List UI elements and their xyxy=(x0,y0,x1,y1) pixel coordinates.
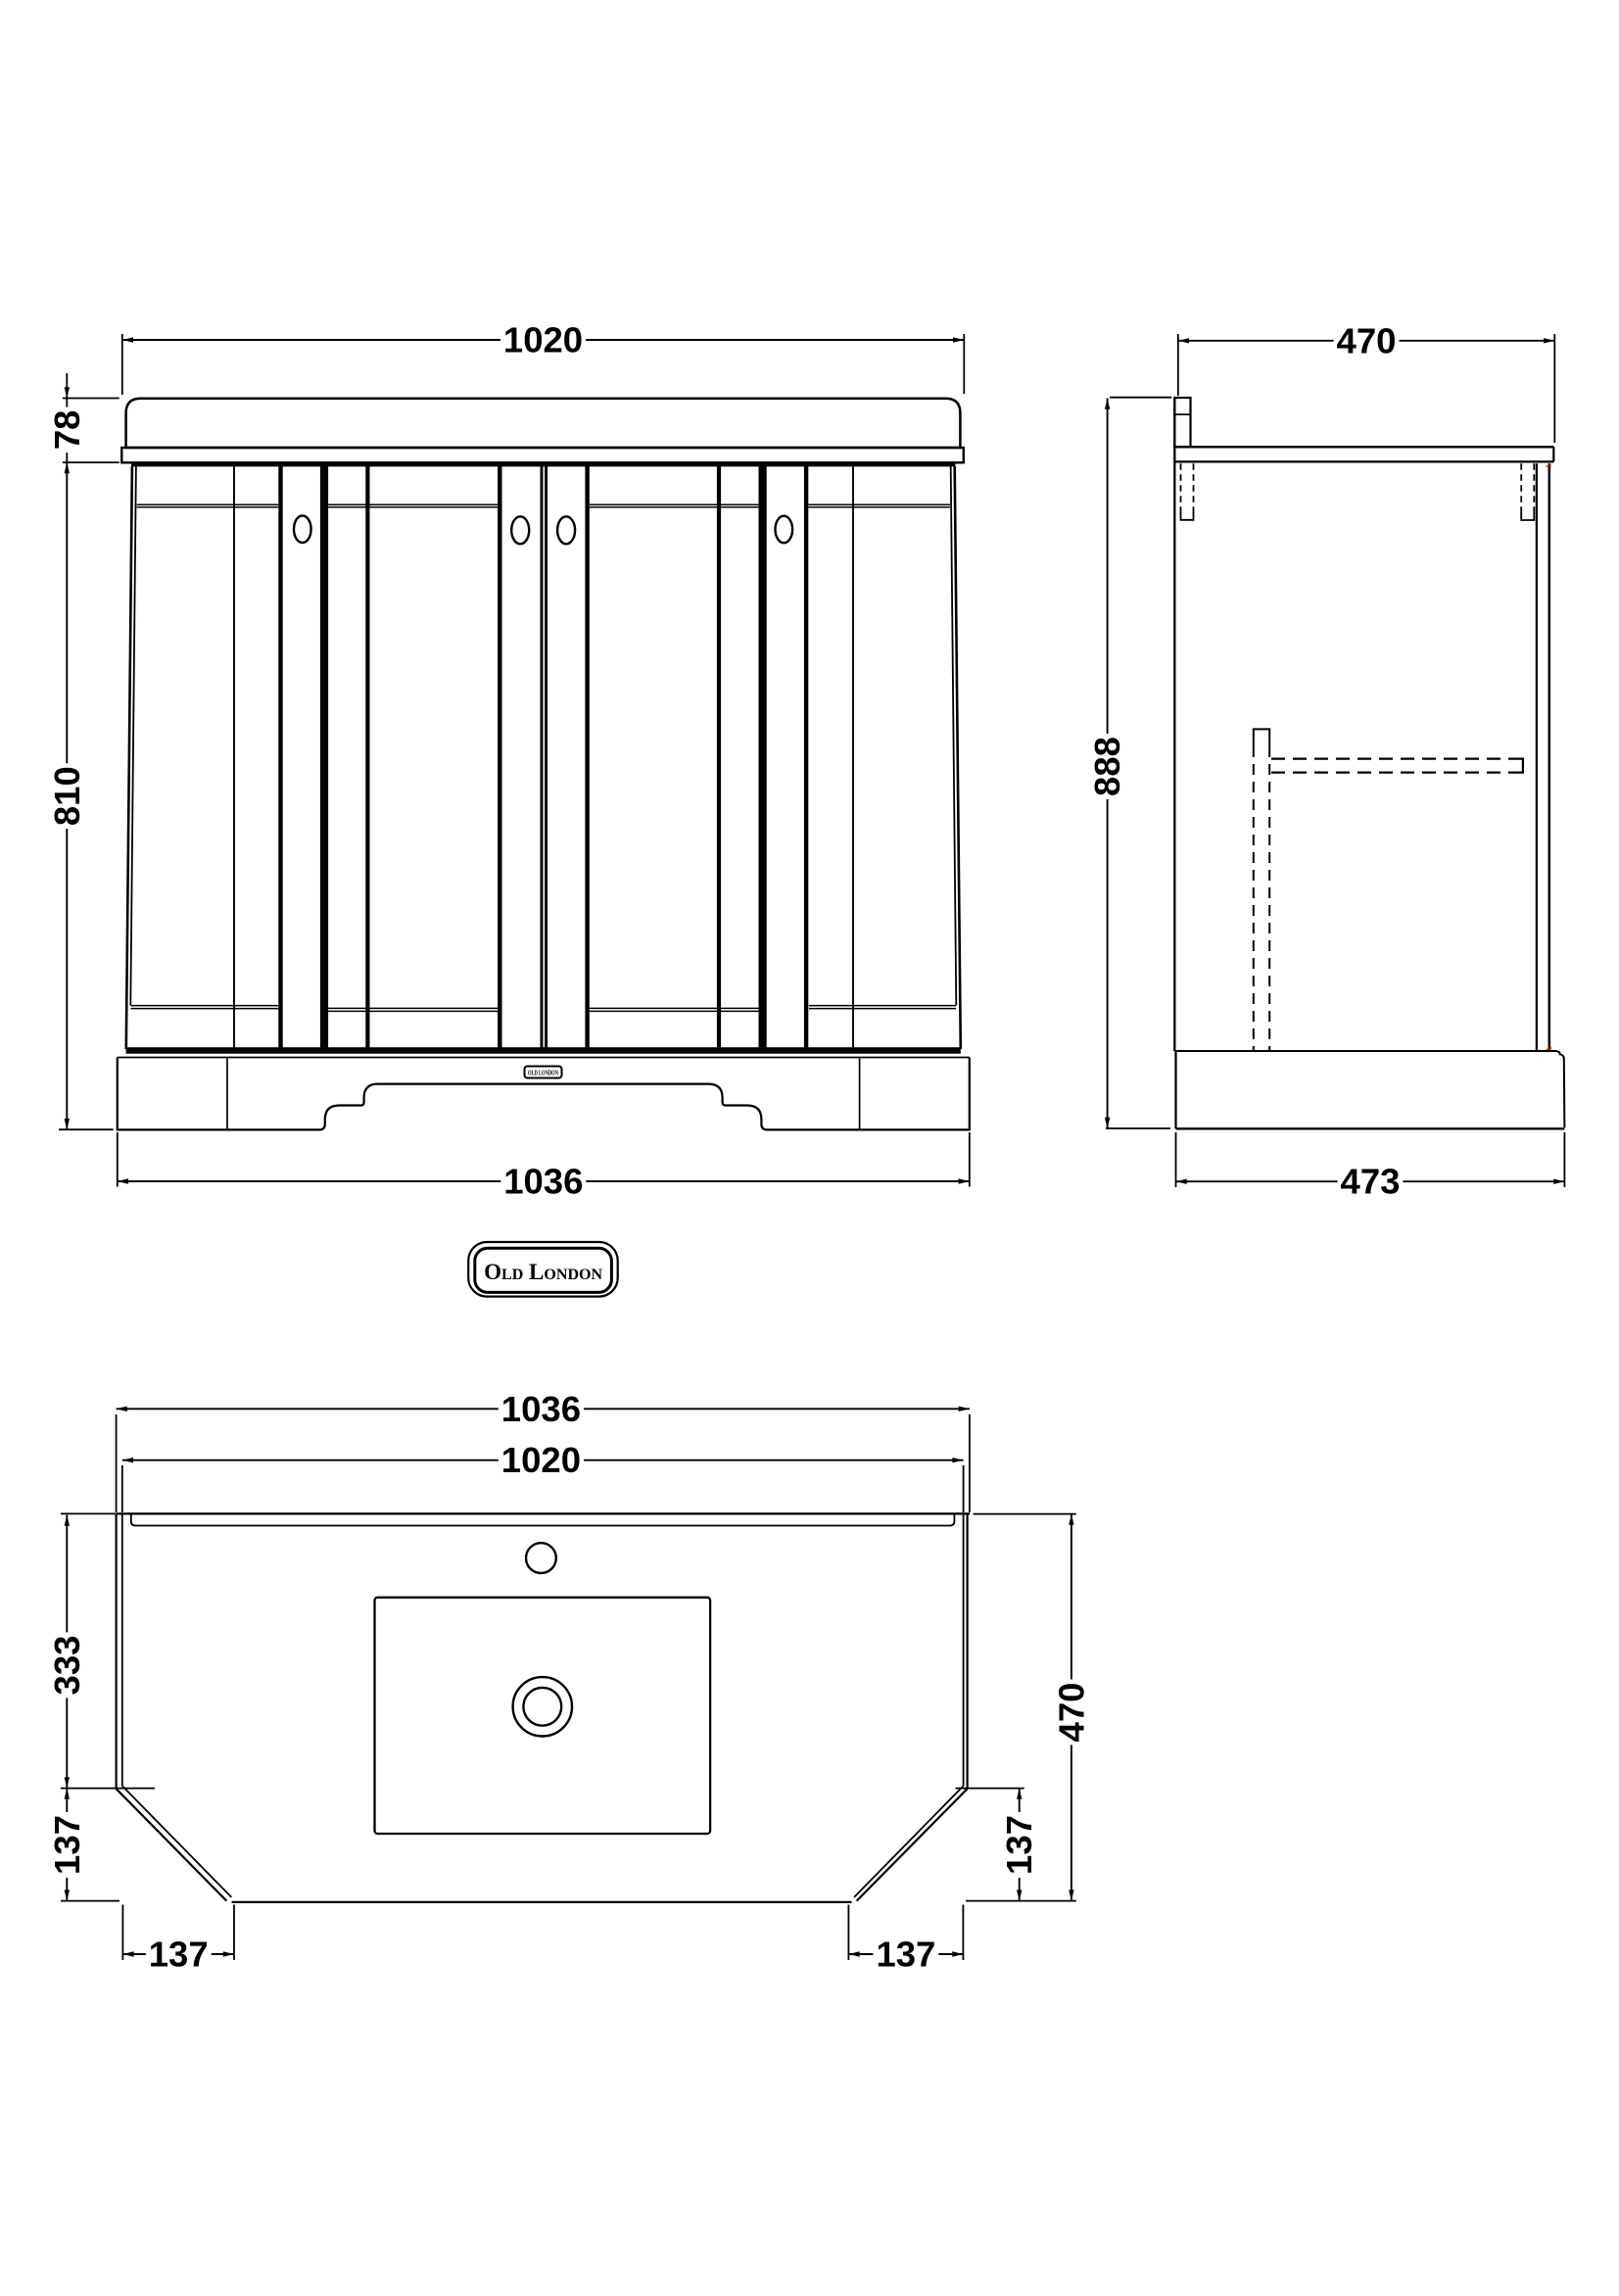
svg-text:137: 137 xyxy=(149,1935,209,1975)
svg-text:1020: 1020 xyxy=(503,320,583,360)
svg-text:OLD LONDON: OLD LONDON xyxy=(528,1069,558,1077)
svg-text:888: 888 xyxy=(1087,737,1127,796)
svg-text:470: 470 xyxy=(1051,1683,1091,1743)
svg-text:473: 473 xyxy=(1341,1162,1401,1202)
svg-text:137: 137 xyxy=(876,1935,935,1975)
svg-text:137: 137 xyxy=(47,1815,87,1875)
svg-text:810: 810 xyxy=(47,766,87,826)
svg-text:470: 470 xyxy=(1337,320,1397,360)
svg-text:1036: 1036 xyxy=(503,1162,583,1202)
svg-text:1020: 1020 xyxy=(501,1440,581,1480)
svg-text:333: 333 xyxy=(47,1636,87,1696)
svg-text:78: 78 xyxy=(47,409,87,450)
svg-text:1036: 1036 xyxy=(501,1389,581,1429)
svg-text:137: 137 xyxy=(999,1815,1039,1875)
svg-text:Old London: Old London xyxy=(484,1260,602,1284)
